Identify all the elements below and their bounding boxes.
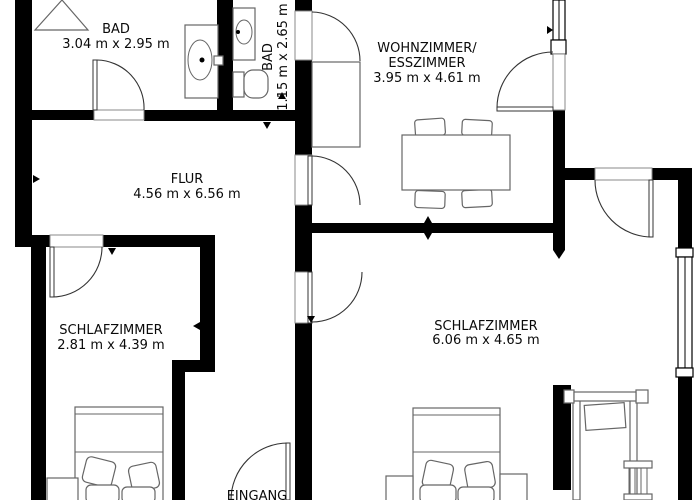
shower-icon [35,0,88,30]
wall [565,168,595,180]
room-label-schlafzimmer-left: SCHLAFZIMMER [59,323,162,338]
tick [193,322,200,330]
window-sill [551,40,566,54]
blanket [458,487,494,500]
wall [553,110,565,250]
floor-plan: BAD 3.04 m x 2.95 m BAD 1.15 m x 2.65 m … [0,0,700,500]
sink-icon [233,8,255,60]
tick [263,122,271,129]
door-opening [295,11,312,60]
double-bed-right [413,408,500,500]
door-opening [50,235,103,247]
chair [462,189,493,208]
dining-table [402,118,510,209]
wall [312,223,553,233]
room-label-wohnzimmer-2: ESSZIMMER [388,56,465,71]
room-label-bad-large: BAD [102,22,130,37]
nightstand [500,474,527,500]
wall [295,60,312,155]
room-dims-wohnzimmer: 3.95 m x 4.61 m [373,71,480,86]
wall [678,377,692,500]
chair [414,118,445,137]
wardrobe [312,62,360,147]
wall [217,0,233,110]
table-top [402,135,510,190]
door-arc [312,272,362,322]
hanging-panel [584,403,626,431]
door-arc [97,60,144,110]
door-opening [595,168,652,180]
room-dims-bad-small: 1.15 m x 2.65 m [276,3,291,110]
window-sill [676,368,693,377]
wall [31,235,46,500]
floor-plan-svg: BAD 3.04 m x 2.95 m BAD 1.15 m x 2.65 m … [0,0,700,500]
wall [15,110,94,120]
door-arc [312,156,360,205]
door-leaf [308,156,312,205]
wall [295,0,312,12]
door-leaf [50,247,54,297]
blanket [86,485,119,500]
door-opening [553,54,565,110]
wall [15,0,32,247]
nightstand [47,478,78,500]
windows [551,0,693,377]
room-label-eingang: EINGANG [227,489,288,500]
wall [295,205,312,272]
washbasin-icon [185,25,223,98]
nightstand [386,476,413,500]
tick [33,175,40,183]
door-leaf [93,60,97,110]
wall [144,110,297,121]
wall [172,360,215,372]
double-bed-left [75,407,163,500]
clothes-rack [564,390,652,500]
room-label-flur: FLUR [171,172,204,187]
tick [553,250,565,259]
wall [200,247,215,362]
door-arc [312,12,360,61]
ladder-icon [624,461,652,500]
tick [424,216,432,223]
wall [103,235,215,247]
door-opening [94,110,144,120]
door-arc [595,180,652,237]
room-label-wohnzimmer-1: WOHNZIMMER/ [377,41,477,56]
blanket [122,487,155,500]
window-sill [676,248,693,257]
wall [295,323,312,500]
door-arc [52,247,102,297]
chair [462,119,493,137]
room-label-schlafzimmer-right: SCHLAFZIMMER [434,319,537,334]
wall [172,372,185,500]
tick [424,233,432,240]
room-dims-bad-large: 3.04 m x 2.95 m [62,37,169,52]
tick [547,26,553,34]
room-label-bad-small: BAD [261,43,276,71]
door-arc [497,52,553,108]
room-dims-flur: 4.56 m x 6.56 m [133,187,240,202]
room-dims-schlafzimmer-left: 2.81 m x 4.39 m [57,338,164,353]
room-dims-schlafzimmer-right: 6.06 m x 4.65 m [432,333,539,348]
toilet-icon [233,70,268,98]
blanket [420,485,456,500]
tick [108,248,116,255]
wall [652,168,692,180]
door-leaf [497,107,553,111]
chair [415,190,446,208]
door-leaf [308,272,312,323]
wall [678,180,692,248]
door-leaf [649,180,653,237]
wall [15,235,50,247]
